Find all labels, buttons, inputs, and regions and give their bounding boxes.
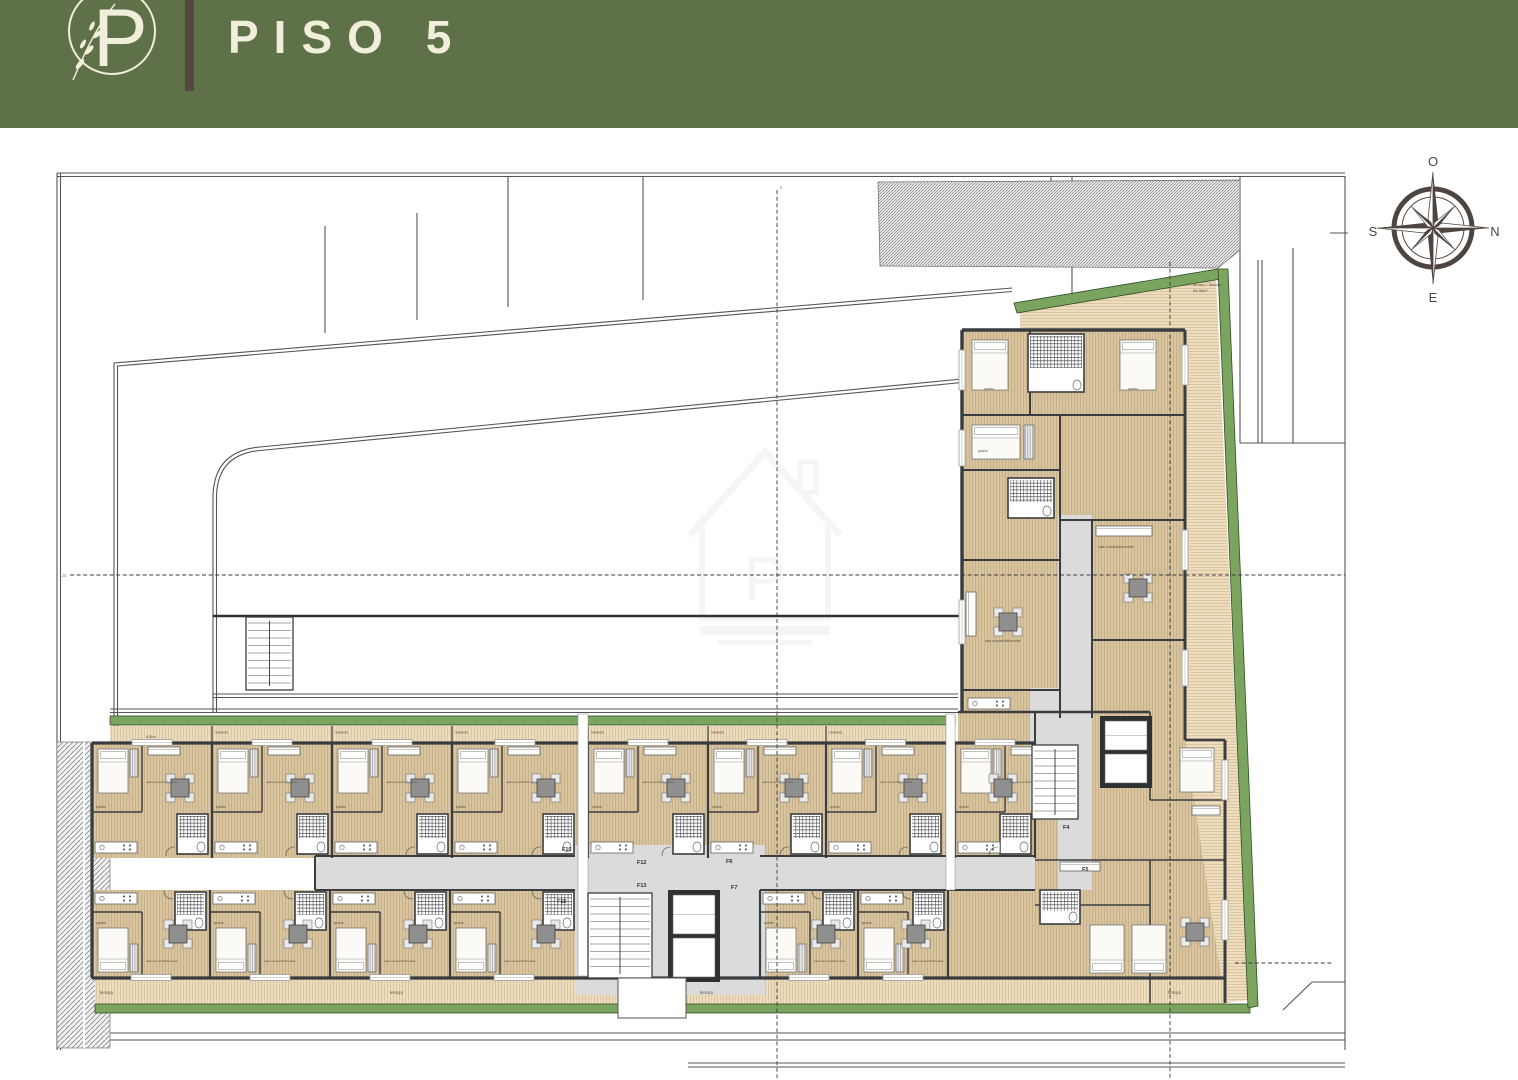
window xyxy=(975,740,1015,746)
svg-text:F6: F6 xyxy=(726,859,732,865)
svg-text:quarto: quarto xyxy=(984,387,994,391)
kitchen-counter xyxy=(95,893,137,904)
wardrobe xyxy=(488,944,496,972)
svg-text:terraço: terraço xyxy=(390,990,404,995)
bed xyxy=(1132,925,1166,973)
bed xyxy=(216,928,246,972)
bed xyxy=(98,749,128,793)
bed xyxy=(864,928,894,972)
svg-text:quarto: quarto xyxy=(336,805,346,809)
window xyxy=(866,740,906,746)
wardrobe xyxy=(370,749,378,777)
wardrobe xyxy=(248,944,256,972)
kitchen-counter xyxy=(968,698,1010,709)
sofa xyxy=(764,747,796,755)
compass-south-label: S xyxy=(1369,224,1378,239)
svg-text:sala comum/kitchenette: sala comum/kitchenette xyxy=(912,959,944,963)
wardrobe xyxy=(798,944,806,972)
wardrobe xyxy=(130,944,138,972)
svg-text:quarto: quarto xyxy=(96,805,106,809)
kitchen-counter xyxy=(453,893,495,904)
bed xyxy=(218,749,248,793)
logo-letter: P xyxy=(93,0,148,84)
svg-text:quarto: quarto xyxy=(712,805,722,809)
bed xyxy=(98,928,128,972)
elevator xyxy=(668,890,720,982)
svg-text:sala comum/kitchenette: sala comum/kitchenette xyxy=(146,780,178,784)
kitchen-counter xyxy=(711,842,753,853)
bed xyxy=(456,928,486,972)
svg-text:F4: F4 xyxy=(1063,825,1070,831)
svg-text:quarto: quarto xyxy=(862,921,872,925)
sofa xyxy=(508,747,540,755)
svg-text:sala comum/kitchenette: sala comum/kitchenette xyxy=(266,780,298,784)
kitchen-counter xyxy=(335,842,377,853)
svg-text:varanda: varanda xyxy=(455,731,468,735)
bed xyxy=(1180,748,1214,792)
svg-text:quarto: quarto xyxy=(96,921,106,925)
stairs xyxy=(246,617,293,690)
svg-text:quarto: quarto xyxy=(456,805,466,809)
svg-text:quarto: quarto xyxy=(592,805,602,809)
svg-text:quarto: quarto xyxy=(454,921,464,925)
window xyxy=(495,740,535,746)
sofa xyxy=(1060,862,1100,871)
bed xyxy=(972,340,1008,390)
wardrobe xyxy=(490,749,498,777)
window xyxy=(1182,530,1188,570)
kitchen-counter xyxy=(763,893,805,904)
floorplan-sheet: P quartosala comum/kitchenettevarandaqua… xyxy=(0,0,1518,1080)
compass-rose-icon: O N E S xyxy=(1369,154,1500,305)
window xyxy=(1222,900,1228,940)
svg-text:P: P xyxy=(744,545,785,614)
window xyxy=(250,975,290,981)
wardrobe xyxy=(626,749,634,777)
kitchen-counter xyxy=(861,893,903,904)
svg-text:sala comum/kitchenette: sala comum/kitchenette xyxy=(146,959,178,963)
svg-text:sala comum/kitchenette: sala comum/kitchenette xyxy=(985,639,1021,643)
window xyxy=(372,740,412,746)
compass-west-label: O xyxy=(1428,154,1438,169)
wardrobe xyxy=(130,749,138,777)
window xyxy=(1182,650,1188,686)
bed xyxy=(961,749,991,793)
sheet-header: P PISO 5 xyxy=(0,0,1518,128)
sofa xyxy=(882,747,914,755)
sofa xyxy=(268,747,300,755)
svg-text:sala comum/kitchenette: sala comum/kitchenette xyxy=(384,959,416,963)
compass-north-label: N xyxy=(1490,224,1499,239)
wardrobe xyxy=(368,944,376,972)
window xyxy=(494,975,534,981)
bathroom xyxy=(417,814,448,854)
svg-text:5: 5 xyxy=(780,186,782,190)
bathroom xyxy=(673,814,704,854)
bed xyxy=(1120,340,1156,390)
window xyxy=(959,350,965,390)
svg-text:quarto: quarto xyxy=(334,921,344,925)
sofa xyxy=(388,747,420,755)
svg-text:sala comum/kitchenette: sala comum/kitchenette xyxy=(506,780,538,784)
kitchen-counter xyxy=(455,842,497,853)
stairs xyxy=(1032,745,1078,819)
logo: P xyxy=(55,0,175,128)
sofa xyxy=(148,747,180,755)
svg-text:quarto: quarto xyxy=(764,921,774,925)
svg-text:terraço: terraço xyxy=(100,990,114,995)
window xyxy=(747,740,787,746)
svg-text:quarto: quarto xyxy=(830,805,840,809)
bed xyxy=(714,749,744,793)
svg-text:6,00m²: 6,00m² xyxy=(146,735,156,739)
kitchen-counter xyxy=(213,893,255,904)
bed xyxy=(972,425,1020,459)
svg-text:sala comum/kitchenette: sala comum/kitchenette xyxy=(264,959,296,963)
svg-text:varanda: varanda xyxy=(829,731,842,735)
floorplan-drawing: P quartosala comum/kitchenettevarandaqua… xyxy=(0,0,1518,1080)
sofa xyxy=(1096,526,1152,536)
svg-text:F15: F15 xyxy=(557,899,566,905)
kitchen-counter xyxy=(215,842,257,853)
svg-text:varanda: varanda xyxy=(711,731,724,735)
svg-text:F12: F12 xyxy=(637,860,646,866)
window xyxy=(959,430,965,466)
svg-text:quarto: quarto xyxy=(1128,387,1138,391)
bed xyxy=(766,928,796,972)
roof-outlines xyxy=(110,288,1012,742)
bathroom xyxy=(1028,334,1084,392)
window xyxy=(131,975,171,981)
svg-text:quarto: quarto xyxy=(959,805,969,809)
svg-text:84,36m²: 84,36m² xyxy=(1193,288,1208,293)
svg-text:sala comum/kitchenette: sala comum/kitchenette xyxy=(642,780,674,784)
bathroom xyxy=(791,814,822,854)
svg-text:terraço / floreira: terraço / floreira xyxy=(1193,282,1222,287)
kitchen-counter xyxy=(829,842,871,853)
compass-east-label: E xyxy=(1429,290,1438,305)
window xyxy=(1182,345,1188,385)
kitchen-counter xyxy=(95,842,137,853)
svg-text:terraço: terraço xyxy=(700,990,714,995)
header-divider xyxy=(185,0,194,91)
window xyxy=(959,600,965,644)
window xyxy=(628,740,668,746)
page-title: PISO 5 xyxy=(228,10,466,64)
kitchen-counter xyxy=(333,893,375,904)
bed xyxy=(1090,925,1124,973)
bathroom xyxy=(1008,478,1054,518)
window xyxy=(132,740,172,746)
svg-text:varanda: varanda xyxy=(335,731,348,735)
svg-text:quarto: quarto xyxy=(216,805,226,809)
bed xyxy=(338,749,368,793)
sofa xyxy=(644,747,676,755)
svg-text:quarto: quarto xyxy=(978,449,988,453)
svg-text:sala comum/kitchenette: sala comum/kitchenette xyxy=(386,780,418,784)
window xyxy=(1222,760,1228,800)
svg-text:sala comum/kitchenette: sala comum/kitchenette xyxy=(814,959,846,963)
bathroom xyxy=(1040,890,1080,924)
svg-text:sala comum/kitchenette: sala comum/kitchenette xyxy=(1098,545,1134,549)
wardrobe xyxy=(1024,425,1034,459)
svg-text:F5: F5 xyxy=(1082,867,1088,873)
bed xyxy=(336,928,366,972)
window xyxy=(252,740,292,746)
wardrobe xyxy=(993,749,1001,777)
window xyxy=(789,975,829,981)
bed xyxy=(832,749,862,793)
sofa xyxy=(1192,806,1220,815)
svg-text:varanda: varanda xyxy=(591,731,604,735)
svg-text:F7: F7 xyxy=(731,885,737,891)
bathroom xyxy=(910,814,941,854)
kitchen-counter xyxy=(591,842,633,853)
bed xyxy=(458,749,488,793)
wardrobe xyxy=(864,749,872,777)
svg-text:sala comum/kitchenette: sala comum/kitchenette xyxy=(504,959,536,963)
bathroom xyxy=(1000,814,1031,854)
wardrobe xyxy=(746,749,754,777)
bathroom xyxy=(297,814,328,854)
svg-text:sala comum/kitchenette: sala comum/kitchenette xyxy=(880,780,912,784)
window xyxy=(370,975,410,981)
svg-text:varanda: varanda xyxy=(215,731,228,735)
sofa xyxy=(966,592,976,636)
bathroom xyxy=(177,814,208,854)
bed xyxy=(594,749,624,793)
svg-text:F13: F13 xyxy=(637,883,646,889)
svg-text:F10: F10 xyxy=(562,847,571,853)
svg-text:25: 25 xyxy=(62,574,66,578)
window xyxy=(883,975,923,981)
elevator xyxy=(1100,716,1152,788)
wardrobe xyxy=(250,749,258,777)
stairs xyxy=(588,893,652,978)
svg-text:quarto: quarto xyxy=(214,921,224,925)
svg-text:sala comum/kitchenette: sala comum/kitchenette xyxy=(762,780,794,784)
